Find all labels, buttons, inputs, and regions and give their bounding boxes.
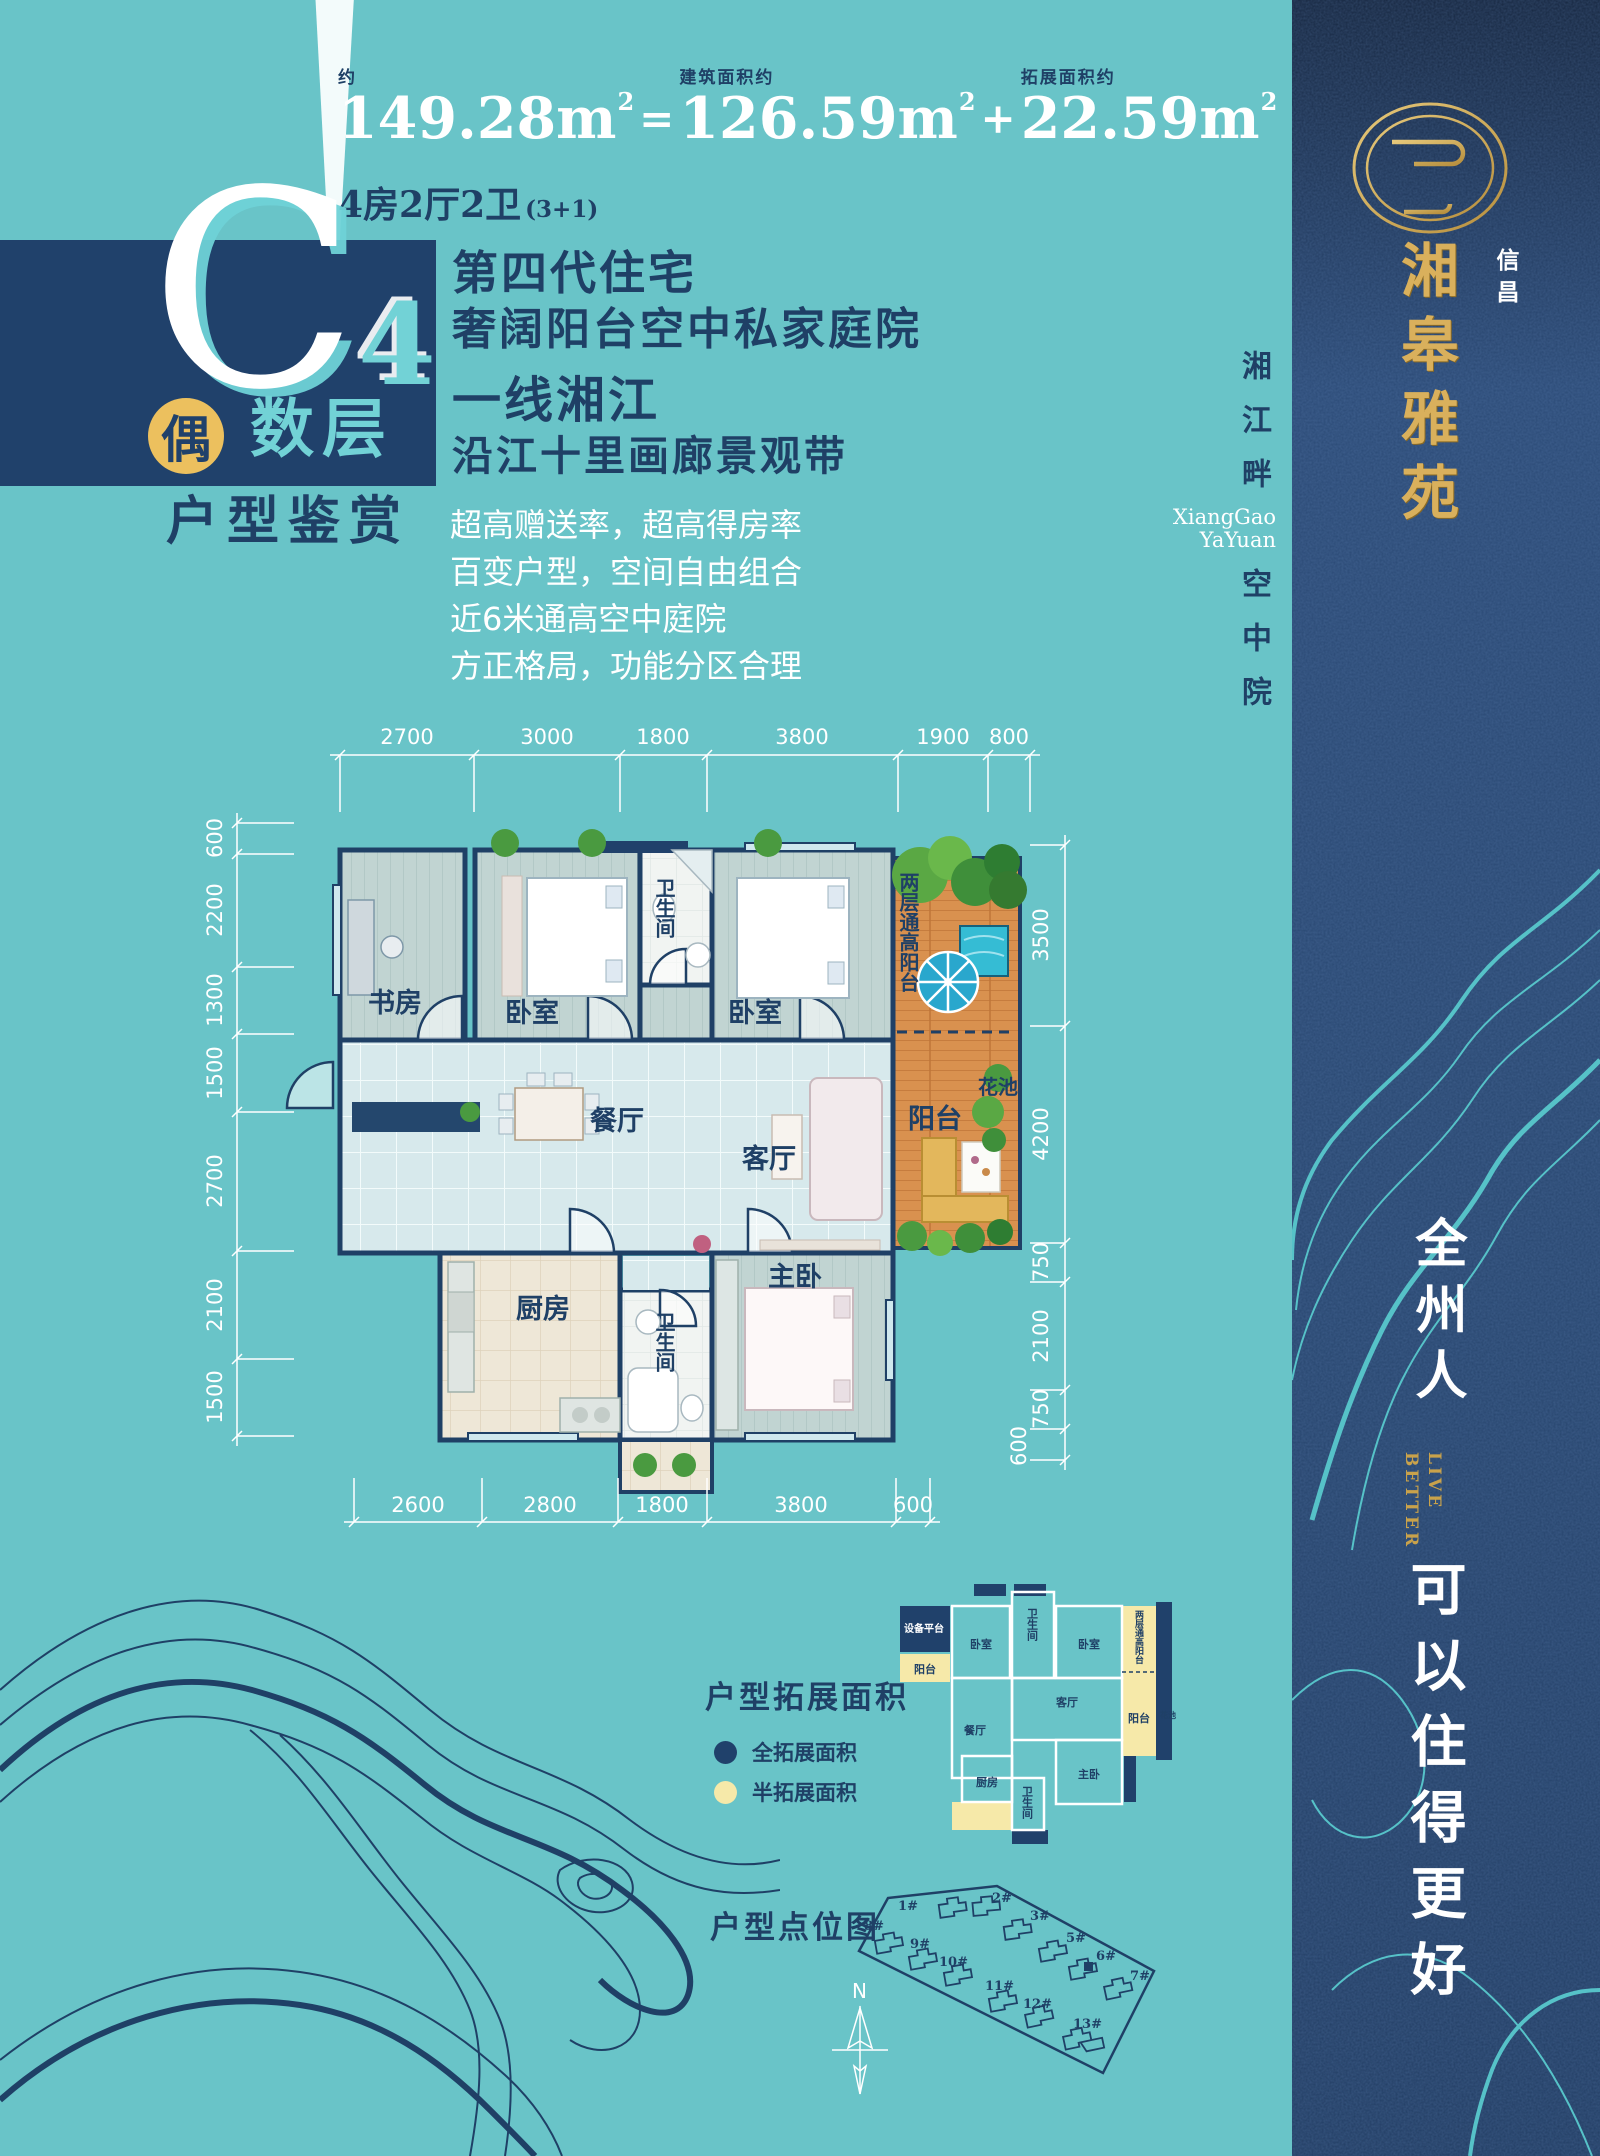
extension-title: 户型拓展面积 xyxy=(705,1672,909,1717)
legend-dot-half xyxy=(714,1781,737,1804)
headline-4: 沿江十里画廊景观带 xyxy=(452,436,848,477)
flower-bed-label: 花池 xyxy=(978,1075,1018,1099)
unit-sup: 2 xyxy=(1261,87,1278,116)
mini-bedroom-label: 卧室 xyxy=(970,1637,992,1651)
study-label: 书房 xyxy=(368,988,422,1019)
floors-label: 数层 xyxy=(250,398,394,462)
brand-pinyin: XiangGao YaYuan xyxy=(1150,506,1276,552)
compass: N xyxy=(832,1979,888,2094)
building-label: 11# xyxy=(985,1979,1014,1994)
unit-m: m xyxy=(1199,85,1259,152)
dim-bottom: 2600 xyxy=(391,1493,444,1517)
deck-sofa xyxy=(922,1196,1008,1222)
brand-name: 湘皋雅苑 xyxy=(1396,240,1454,536)
entry-console xyxy=(352,1102,480,1132)
dim-left: 1500 xyxy=(203,1046,227,1099)
legend-full-extension: 全拓展面积 xyxy=(714,1737,857,1767)
brand-pinyin-line1: XiangGao xyxy=(1150,506,1276,529)
tall-balcony-label: 两层通高阳台 xyxy=(896,872,920,992)
unit-letter: C xyxy=(150,156,358,428)
dim-bottom: 600 xyxy=(893,1493,933,1517)
unit-m: m xyxy=(898,85,958,152)
legend-dot-full xyxy=(714,1741,737,1764)
window xyxy=(333,885,341,995)
building-label: 9# xyxy=(910,1937,930,1952)
mini-balcony2-label: 阳台 xyxy=(1128,1711,1150,1725)
dim-right: 4200 xyxy=(1029,1107,1053,1160)
legend-half-extension: 半拓展面积 xyxy=(714,1777,857,1807)
mini-bath-label: 卫生间 xyxy=(1026,1608,1039,1642)
slogan-en-live: LIVE xyxy=(1425,1452,1442,1549)
mini-equip-label: 设备平台 xyxy=(904,1622,944,1635)
building-label: 12# xyxy=(1023,1997,1052,2012)
mini-dining-label: 餐厅 xyxy=(963,1723,986,1737)
bath-top-label: 卫生间 xyxy=(652,878,676,938)
area-total-value: 149.28m2 xyxy=(338,90,634,147)
dim-left: 1500 xyxy=(203,1370,227,1423)
unit-m: m xyxy=(556,85,616,152)
dim-left: 1300 xyxy=(203,973,227,1026)
area-built-group: 建筑面积约 126.59m2 xyxy=(679,70,975,147)
selling-point: 近6米通高空中庭院 xyxy=(450,596,802,643)
dining-label: 餐厅 xyxy=(590,1106,644,1137)
building-label: 1# xyxy=(898,1899,918,1914)
headline-1: 第四代住宅 xyxy=(452,250,697,296)
mini-kitchen-label: 厨房 xyxy=(976,1775,998,1789)
brand-subname: 信昌 xyxy=(1494,248,1517,312)
area-built-value: 126.59m2 xyxy=(679,90,975,147)
building-label: 13# xyxy=(1073,2017,1102,2032)
building-label: 5# xyxy=(1066,1931,1086,1946)
location-tag-1: 湘江畔 xyxy=(1238,350,1268,512)
area-stats: 约 149.28m2 = 建筑面积约 126.59m2 + 拓展面积约 22.5… xyxy=(338,70,1277,147)
mini-balcony-label: 阳台 xyxy=(914,1662,936,1676)
compass-n-label: N xyxy=(852,1979,867,2003)
selling-points: 超高赠送率，超高得房率 百变户型，空间自由组合 近6米通高空中庭院 方正格局，功… xyxy=(450,502,802,690)
bedroom1-label: 卧室 xyxy=(505,997,559,1029)
location-tag-2: 空中院 xyxy=(1238,568,1268,730)
living-label: 客厅 xyxy=(742,1143,796,1175)
dim-top: 1800 xyxy=(636,725,689,749)
site-building-labels: 1# 2# 3# 5# 6# 7# 8# 9# 10# 11# 12# 13# xyxy=(864,1891,1150,2032)
dim-top: 3800 xyxy=(775,725,828,749)
slogan-en-better: BETTER xyxy=(1402,1452,1419,1549)
poster-page: 约 149.28m2 = 建筑面积约 126.59m2 + 拓展面积约 22.5… xyxy=(0,0,1600,2156)
contour-line-art xyxy=(0,1540,780,2156)
unit-number: 4 xyxy=(358,290,436,402)
selling-point: 百变户型，空间自由组合 xyxy=(450,549,802,596)
building-label: 6# xyxy=(1096,1949,1116,1964)
dim-left: 2100 xyxy=(203,1278,227,1331)
mini-living-label: 客厅 xyxy=(1055,1695,1078,1709)
dim-left: 2700 xyxy=(203,1154,227,1207)
room-spec-main: 4房2厅2卫 xyxy=(338,184,521,226)
building-label: 3# xyxy=(1030,1909,1050,1924)
mini-extension-plan: 设备平台 阳台 卧室 卫生间 卧室 两层通高阳台 客厅 餐厅 厨房 卫生间 主卧… xyxy=(880,1580,1190,1870)
room-spec-note: (3+1) xyxy=(525,196,598,223)
building-label: 2# xyxy=(992,1891,1012,1906)
umbrella xyxy=(918,952,978,1012)
dim-bottom: 3800 xyxy=(774,1493,827,1517)
brand-pinyin-line2: YaYuan xyxy=(1150,529,1276,552)
hall-passage xyxy=(623,1256,709,1290)
dim-bottom: 2800 xyxy=(523,1493,576,1517)
building-label: 8# xyxy=(864,1919,884,1934)
dim-top: 1900 xyxy=(916,725,969,749)
area-ext-number: 22.59 xyxy=(1021,85,1200,152)
dim-top: 3000 xyxy=(520,725,573,749)
floor-plan: 书房 卧室 卫生间 卧室 餐厅 客厅 厨房 卫生间 主卧 阳台 花池 两层通高阳… xyxy=(180,690,1200,1570)
room-spec: 4房2厅2卫(3+1) xyxy=(338,176,598,228)
mini-bath2-label: 卫生间 xyxy=(1021,1786,1034,1820)
area-ext-group: 拓展面积约 22.59m2 xyxy=(1021,70,1278,147)
slogan-line-1: 全州人 xyxy=(1410,1216,1462,1414)
mini-bedroom2-label: 卧室 xyxy=(1078,1637,1100,1651)
dim-right: 750 xyxy=(1029,1242,1053,1282)
kitchen-label: 厨房 xyxy=(516,1294,570,1325)
even-floor-circle: 偶 xyxy=(148,398,224,474)
area-total-group: 约 149.28m2 xyxy=(338,70,634,147)
dim-left: 600 xyxy=(203,818,227,858)
dim-right: 2100 xyxy=(1029,1309,1053,1362)
building-label: 7# xyxy=(1130,1969,1150,1984)
bath-bottom-label: 卫生间 xyxy=(652,1312,676,1372)
unit-sup: 2 xyxy=(959,87,976,116)
dim-top: 2700 xyxy=(380,725,433,749)
balcony-label: 阳台 xyxy=(908,1103,962,1135)
plus-sign: + xyxy=(981,94,1016,143)
mini-tall-balcony-label: 两层通高阳台 xyxy=(1133,1610,1144,1665)
slogan-line-2: 可以住得更好 xyxy=(1406,1560,1462,2016)
headline-3: 一线湘江 xyxy=(452,376,660,425)
dim-bottom: 1800 xyxy=(635,1493,688,1517)
hall-top xyxy=(640,985,712,1040)
area-built-number: 126.59 xyxy=(679,85,897,152)
mini-master-label: 主卧 xyxy=(1078,1767,1100,1781)
area-total-number: 149.28 xyxy=(338,85,556,152)
badge-caption: 户型鉴赏 xyxy=(166,496,410,548)
selling-point: 方正格局，功能分区合理 xyxy=(450,643,802,690)
selling-point: 超高赠送率，超高得房率 xyxy=(450,502,802,549)
dim-right: 600 xyxy=(1007,1426,1031,1466)
dim-left: 2200 xyxy=(203,883,227,936)
entry-door xyxy=(287,1062,333,1108)
window xyxy=(745,1433,855,1441)
master-label: 主卧 xyxy=(768,1262,822,1293)
bedroom2-label: 卧室 xyxy=(728,997,782,1029)
legend-half-label: 半拓展面积 xyxy=(752,1777,857,1807)
headline-2: 奢阔阳台空中私家庭院 xyxy=(452,308,922,352)
dim-top: 800 xyxy=(989,725,1029,749)
equals-sign: = xyxy=(639,94,674,143)
legend-full-label: 全拓展面积 xyxy=(752,1737,857,1767)
window xyxy=(468,1433,578,1441)
building-label: 10# xyxy=(939,1955,968,1970)
window xyxy=(886,1300,894,1380)
unit-sup: 2 xyxy=(617,87,634,116)
mini-flower-label: 花池 xyxy=(1160,1710,1176,1720)
dim-right: 3500 xyxy=(1029,908,1053,961)
highlighted-unit-marker xyxy=(1084,1962,1093,1971)
area-ext-value: 22.59m2 xyxy=(1021,90,1278,147)
dim-right: 750 xyxy=(1029,1389,1053,1429)
slogan-english: LIVE BETTER xyxy=(1402,1452,1442,1549)
site-plan: 1# 2# 3# 5# 6# 7# 8# 9# 10# 11# 12# 13# … xyxy=(820,1876,1220,2136)
